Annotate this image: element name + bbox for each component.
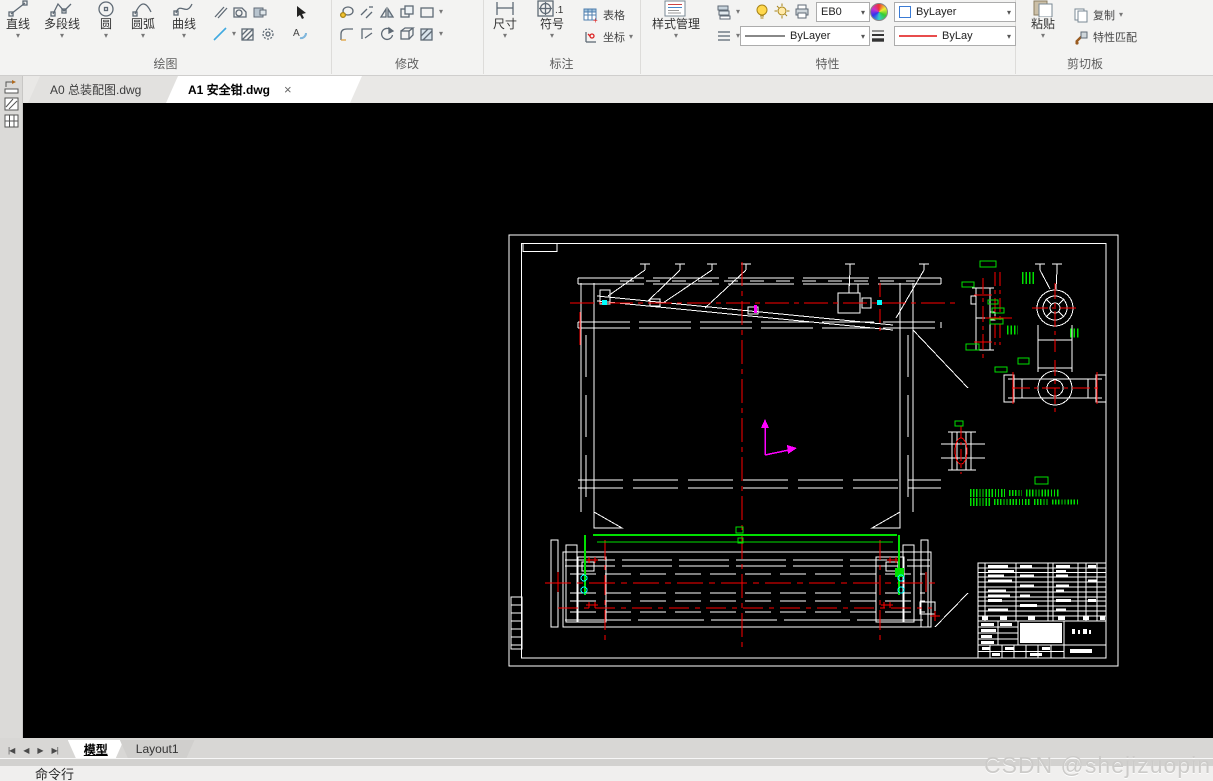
arc-button[interactable]: 圆弧 ▾	[131, 0, 155, 40]
command-line-label: 命令行	[35, 764, 74, 781]
style-manager-button[interactable]: 样式管理 ▾	[652, 0, 700, 40]
text-tool-wrap: A	[292, 25, 308, 41]
cad-drawing	[22, 103, 1213, 738]
next-sheet-button[interactable]: ▶	[37, 746, 42, 755]
linetype-tool[interactable]: ▾	[716, 28, 740, 44]
panel-clipboard: 粘贴 ▾ 复制 ▾ 特性匹配 剪切板	[1015, 0, 1213, 74]
select-arrow-wrap	[294, 4, 310, 20]
lightbulb-icon[interactable]	[754, 3, 770, 19]
dropdown-arrow-icon[interactable]: ▾	[104, 32, 108, 40]
panel-annotate: 尺寸 ▾ .1 符号 ▾ + 表格 坐标 ▾ 标注	[483, 0, 641, 74]
match-properties-icon	[1073, 29, 1089, 45]
text-style-icon[interactable]: A	[292, 25, 308, 41]
lineweight-sample	[899, 34, 937, 38]
dropdown-arrow-icon: ▾	[1007, 8, 1011, 17]
dimension-button[interactable]: 尺寸 ▾	[493, 0, 517, 40]
coordinate-icon	[583, 29, 599, 45]
side-view-geometry	[971, 288, 1106, 405]
modify-icons-row1: ▾	[339, 4, 443, 20]
grid-table-icon[interactable]	[4, 114, 19, 128]
arc-icon	[132, 0, 154, 17]
draw-small-icons-row2: ▾	[212, 26, 276, 42]
svg-text:.1: .1	[555, 5, 564, 16]
doc-tab-a1-active[interactable]: A1 安全钳.dwg ×	[166, 76, 362, 103]
line-button[interactable]: 直线 ▾	[6, 0, 30, 40]
coordinate-tool[interactable]: 坐标 ▾	[583, 29, 633, 45]
dropdown-arrow-icon: ▾	[861, 8, 865, 17]
ribbon: 直线 ▾ 多段线 ▾ 圆 ▾ 圆弧 ▾ 曲线 ▾	[0, 0, 1213, 76]
polyline-icon	[50, 0, 74, 17]
rectangle-array-icon[interactable]	[419, 4, 435, 20]
panel-properties: 样式管理 ▾ ▾ ▾ EB0 ▾ ByLayer ▾ ByLayer	[640, 0, 1016, 74]
prev-sheet-button[interactable]: ◀	[23, 746, 28, 755]
symbol-button[interactable]: .1 符号 ▾	[537, 0, 567, 40]
green-tick-text	[970, 278, 1080, 502]
dropdown-arrow-icon[interactable]: ▾	[503, 32, 507, 40]
lineweight-icon[interactable]	[870, 28, 886, 44]
paste-button[interactable]: 粘贴 ▾	[1031, 0, 1055, 40]
hatch-panel-icon[interactable]	[4, 97, 19, 111]
circle-icon	[96, 0, 116, 17]
color-value: ByLayer	[916, 6, 956, 18]
dropdown-arrow-icon[interactable]: ▾	[1041, 32, 1045, 40]
line-list-icon	[716, 28, 732, 44]
gear-icon[interactable]	[260, 26, 276, 42]
line-icon	[7, 0, 29, 17]
lineweight-select[interactable]: ByLay ▾	[894, 26, 1016, 46]
box-3d-icon[interactable]	[399, 26, 415, 42]
dropdown-arrow-icon[interactable]: ▾	[60, 32, 64, 40]
layout-tab-bar: |◀ ◀ ▶ ▶| 模型 Layout1	[0, 738, 1213, 758]
dimension-icon	[493, 0, 517, 17]
color-wheel-icon[interactable]	[870, 3, 888, 21]
table-icon: +	[583, 7, 599, 23]
doc-tab-a1-label: A1 安全钳.dwg	[188, 81, 270, 98]
hatch-fill-icon[interactable]	[240, 26, 256, 42]
region-icon[interactable]	[232, 4, 248, 20]
doc-tab-a0-label: A0 总装配图.dwg	[50, 81, 141, 98]
dropdown-arrow-icon[interactable]: ▾	[16, 32, 20, 40]
sheet-nav-buttons: |◀ ◀ ▶ ▶|	[0, 746, 68, 758]
panel-draw: 直线 ▾ 多段线 ▾ 圆 ▾ 圆弧 ▾ 曲线 ▾	[0, 0, 332, 74]
dropdown-arrow-icon[interactable]: ▾	[550, 32, 554, 40]
spline-icon	[173, 0, 195, 17]
modify-icons-row2: ▾	[339, 26, 443, 42]
red-centerlines	[545, 262, 1100, 648]
dropdown-arrow-icon[interactable]: ▾	[736, 8, 740, 16]
dropdown-arrow-icon[interactable]: ▾	[141, 32, 145, 40]
solid-icon[interactable]	[252, 4, 268, 20]
dropdown-arrow-icon[interactable]: ▾	[182, 32, 186, 40]
layers-tool[interactable]: ▾	[716, 4, 740, 20]
printer-icon[interactable]	[794, 3, 810, 19]
panel-modify: ▾ ▾ 修改	[331, 0, 484, 74]
hatch-lines-icon[interactable]	[212, 4, 228, 20]
style-manager-icon	[663, 0, 689, 17]
panel-label-annotate: 标注	[483, 55, 640, 72]
dropdown-arrow-icon[interactable]: ▾	[232, 30, 236, 38]
panel-label-draw: 绘图	[0, 55, 331, 72]
symbol-icon: .1	[537, 0, 567, 17]
draw-small-icons-row1	[212, 4, 268, 20]
offset-icon[interactable]	[359, 4, 375, 20]
hatch-edit-icon[interactable]	[419, 26, 435, 42]
linetype-select[interactable]: ByLayer ▾	[740, 26, 870, 46]
lineweight-value: ByLay	[942, 30, 973, 42]
construction-line-icon[interactable]	[212, 26, 228, 42]
document-tabbar: A0 总装配图.dwg A1 安全钳.dwg ×	[22, 75, 1213, 103]
green-annotations	[585, 261, 1080, 595]
dropdown-arrow-icon: ▾	[861, 32, 865, 41]
command-line[interactable]: 命令行	[0, 766, 1213, 781]
paste-icon	[1031, 0, 1055, 17]
svg-text:A: A	[293, 28, 300, 39]
color-swatch	[899, 6, 911, 18]
copy-tool[interactable]: 复制 ▾	[1073, 7, 1123, 23]
dropdown-arrow-icon[interactable]: ▾	[629, 33, 633, 41]
detail-view-geometry	[941, 432, 985, 470]
move-copy-icon[interactable]	[399, 4, 415, 20]
tab-layout1[interactable]: Layout1	[120, 740, 195, 758]
left-tool-strip	[0, 75, 23, 743]
trim-icon[interactable]	[359, 26, 375, 42]
layer-select[interactable]: EB0 ▾	[816, 2, 870, 22]
dropdown-arrow-icon: ▾	[1007, 32, 1011, 41]
named-view-icon[interactable]	[4, 80, 19, 94]
dropdown-arrow-icon[interactable]: ▾	[1119, 11, 1123, 19]
match-properties-tool[interactable]: 特性匹配	[1073, 29, 1137, 45]
color-select[interactable]: ByLayer ▾	[894, 2, 1016, 22]
dropdown-arrow-icon[interactable]: ▾	[674, 32, 678, 40]
linetype-value: ByLayer	[790, 30, 830, 42]
erase-icon[interactable]	[339, 4, 355, 20]
svg-text:+: +	[593, 16, 598, 23]
rotate-icon[interactable]	[379, 26, 395, 42]
copy-icon	[1073, 7, 1089, 23]
layer-state-icons	[754, 3, 810, 19]
panel-label-properties: 特性	[640, 55, 1015, 72]
layers-icon	[716, 4, 732, 20]
circle-button[interactable]: 圆 ▾	[96, 0, 116, 40]
dropdown-arrow-icon[interactable]: ▾	[439, 30, 443, 38]
drawing-canvas[interactable]	[22, 103, 1213, 738]
select-cursor-icon[interactable]	[294, 4, 310, 20]
first-sheet-button[interactable]: |◀	[8, 746, 14, 755]
table-tool[interactable]: + 表格	[583, 7, 625, 23]
spline-button[interactable]: 曲线 ▾	[172, 0, 196, 40]
title-block	[978, 563, 1106, 658]
linetype-sample	[745, 34, 785, 38]
close-icon[interactable]: ×	[284, 82, 292, 97]
sun-icon[interactable]	[774, 3, 790, 19]
last-sheet-button[interactable]: ▶|	[52, 746, 58, 755]
tab-model[interactable]: 模型	[68, 740, 124, 758]
fillet-icon[interactable]	[339, 26, 355, 42]
dropdown-arrow-icon[interactable]: ▾	[439, 8, 443, 16]
layer-value: EB0	[821, 6, 842, 18]
panel-label-modify: 修改	[331, 55, 483, 72]
polyline-button[interactable]: 多段线 ▾	[44, 0, 80, 40]
panel-label-clipboard: 剪切板	[1015, 55, 1155, 72]
mirror-icon[interactable]	[379, 4, 395, 20]
